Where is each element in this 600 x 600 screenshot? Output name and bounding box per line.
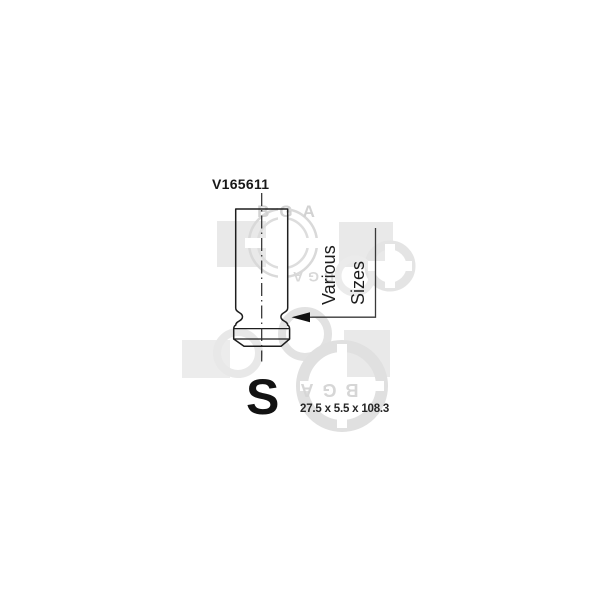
size-annotation-line2: Sizes (344, 239, 373, 305)
arrow-left-icon (292, 312, 311, 322)
part-number: V165611 (212, 177, 269, 192)
valve-technical-drawing (0, 0, 600, 600)
variant-letter: S (246, 372, 279, 422)
size-annotation-label: Various Sizes (315, 239, 373, 305)
product-image: BGA BGA BGA V165611 Various Sizes S 27.5… (0, 0, 600, 600)
dimensions-text: 27.5 x 5.5 x 108.3 (300, 403, 389, 415)
size-annotation-line1: Various (315, 239, 344, 305)
